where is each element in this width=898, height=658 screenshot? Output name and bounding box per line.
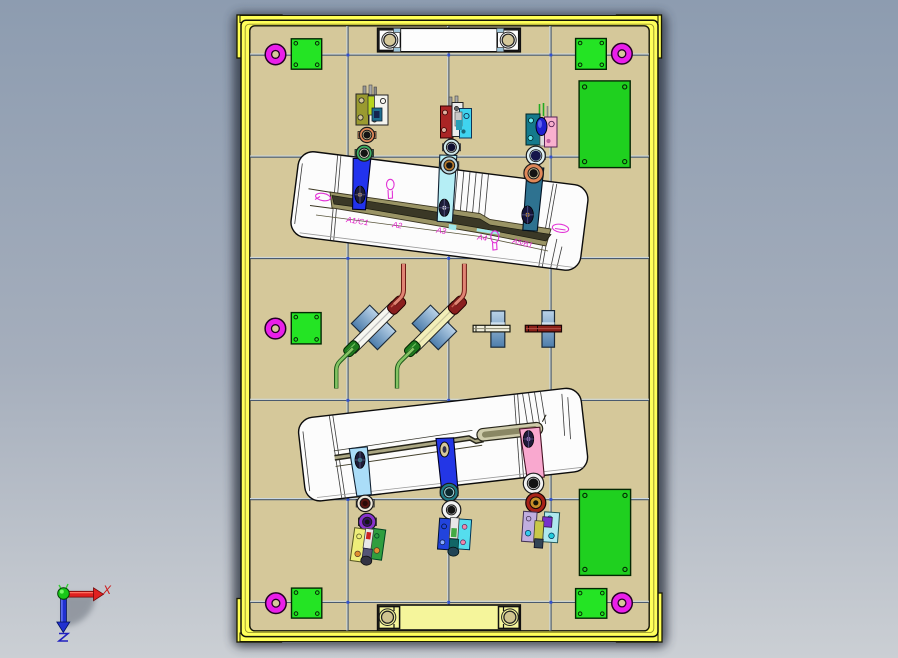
svg-text:A4: A4: [476, 232, 489, 243]
svg-text:A2: A2: [391, 220, 404, 231]
svg-text:A3: A3: [435, 225, 448, 236]
svg-text:X: X: [102, 583, 112, 597]
